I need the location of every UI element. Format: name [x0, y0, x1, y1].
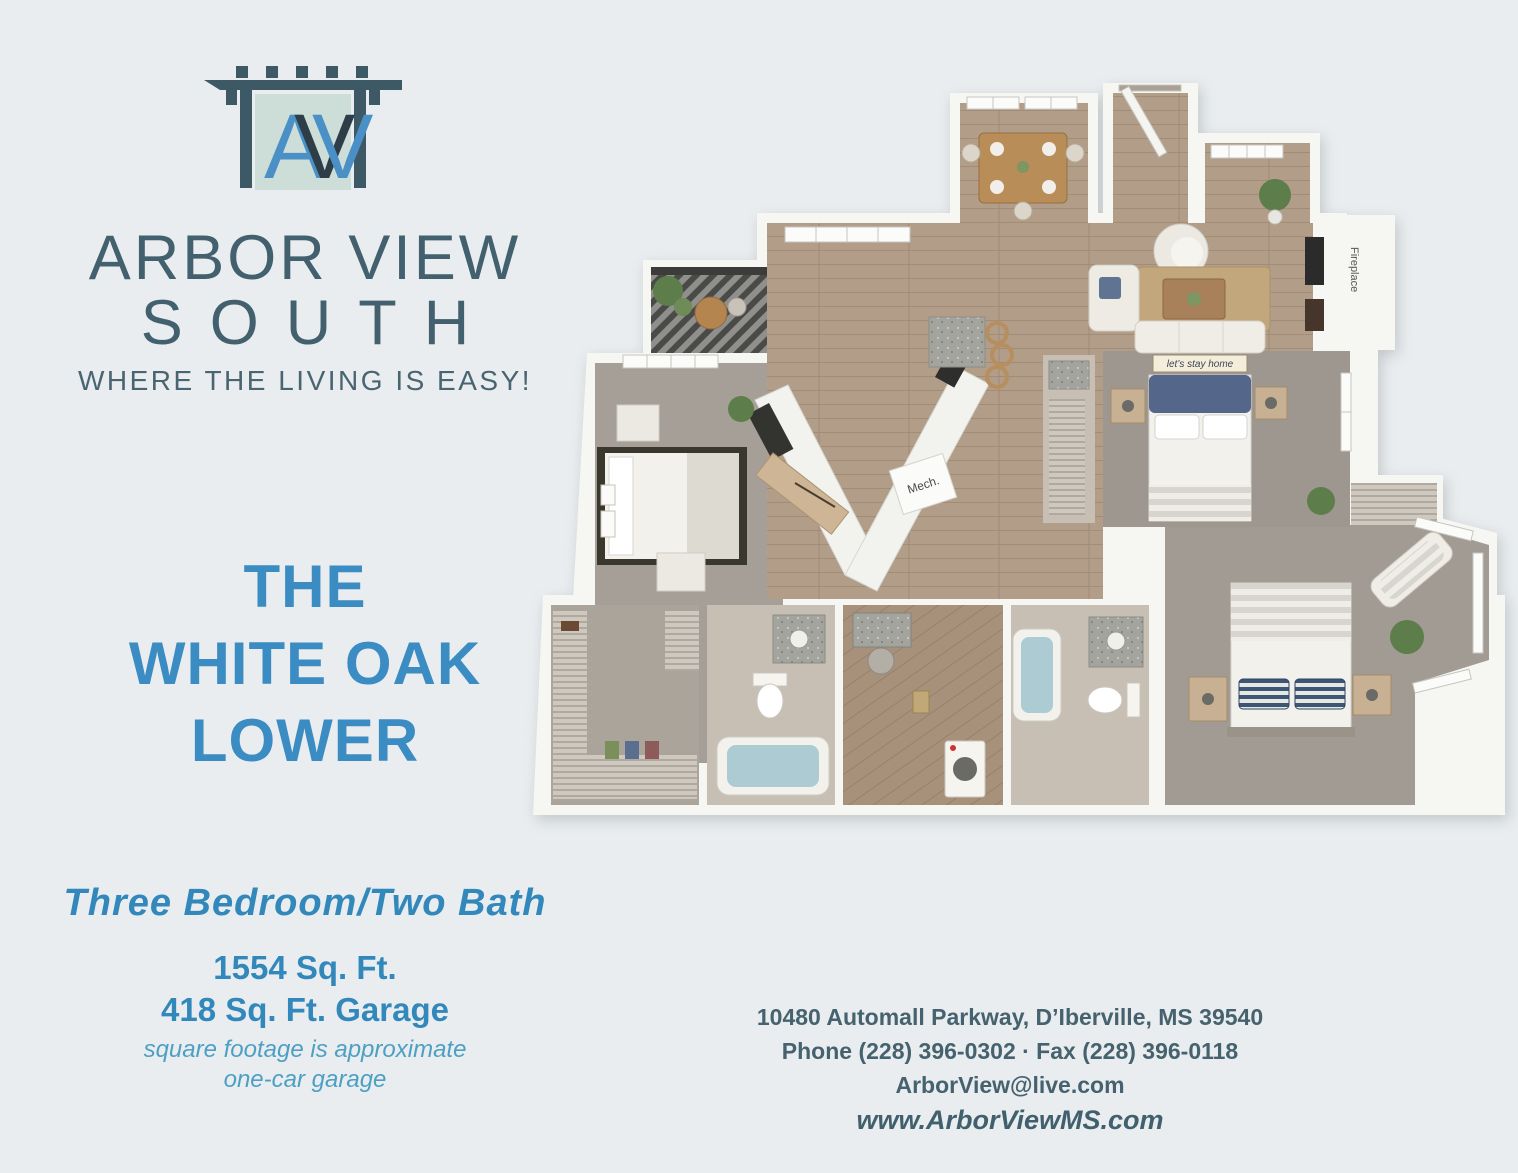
flyer-page: A V V ARBOR VIEW SOUTH WHERE THE LIVING …: [0, 0, 1518, 1173]
living-window: [785, 227, 910, 242]
lamp2-icon: [1265, 397, 1277, 409]
garage-note: one-car garage: [5, 1065, 605, 1095]
garage-footage: 418 Sq. Ft. Garage: [5, 989, 605, 1031]
tub2-icon: [1013, 629, 1061, 721]
nightstand1-icon: [617, 405, 659, 441]
contact-address: 10480 Automall Parkway, D’Iberville, MS …: [700, 1000, 1320, 1034]
closet-shelf-left: [553, 611, 587, 799]
monogram-v-blue: V: [312, 96, 373, 198]
clothes3: [645, 741, 659, 759]
vanity2-icon: [1089, 617, 1143, 667]
ensuite-vanity-icon: [1049, 361, 1089, 389]
bedroom3-plant-icon: [1390, 620, 1424, 654]
contact-phone-fax: Phone (228) 396-0302 · Fax (228) 396-011…: [700, 1034, 1320, 1068]
footage-note: square footage is approximate: [5, 1035, 605, 1065]
contact-email: ArborView@live.com: [700, 1068, 1320, 1102]
bed3-icon: [1227, 583, 1355, 737]
closet-box: [561, 621, 579, 631]
tv-icon: [1305, 237, 1324, 285]
plant-pot-icon: [1268, 210, 1282, 224]
patio-table-icon: [695, 297, 727, 329]
pergola-logo-icon: A V V: [198, 60, 413, 202]
nook-window: [1211, 145, 1283, 158]
pergola-post-left: [240, 90, 252, 188]
floor-plan-rendering: Fireplace: [505, 55, 1505, 820]
firewood-icon: [1305, 299, 1324, 331]
clothes2: [625, 741, 639, 759]
washer-icon: [945, 741, 985, 797]
pergola-rafters: [236, 66, 368, 78]
pergola-beam: [204, 80, 402, 90]
closet-shelf-right: [665, 611, 699, 671]
balcony-plant2-icon: [674, 298, 692, 316]
bed2-icon: [1149, 375, 1251, 521]
contact-website[interactable]: www.ArborViewMS.com: [700, 1102, 1320, 1138]
wall-art2-icon: [601, 511, 615, 537]
fireplace-label: Fireplace: [1348, 247, 1360, 292]
bedroom2-plant-icon: [1307, 487, 1335, 515]
bedroom1-plant-icon: [728, 396, 754, 422]
entry-floor: [1113, 93, 1188, 225]
specs-block: Three Bedroom/Two Bath 1554 Sq. Ft. 418 …: [5, 882, 605, 1095]
wall-art-icon: [601, 485, 615, 505]
bed-bath-heading: Three Bedroom/Two Bath: [5, 882, 605, 925]
living-plant-icon: [1259, 179, 1291, 211]
square-footage: 1554 Sq. Ft.: [5, 947, 605, 989]
balcony-railing: [651, 267, 773, 275]
lamp3-icon: [1202, 693, 1214, 705]
loveseat-icon: [1089, 265, 1139, 331]
vanity1-icon: [773, 615, 825, 663]
ensuite-closet-shelving: [1049, 399, 1085, 515]
tub1-icon: [717, 737, 829, 795]
stay-home-label: let’s stay home: [1167, 359, 1234, 370]
stay-home-sign: let’s stay home: [1153, 355, 1247, 372]
bedroom2-window: [1341, 373, 1351, 451]
bedroom1-window: [623, 355, 718, 368]
bench1-icon: [657, 553, 705, 591]
closet-shelf-bottom: [587, 755, 697, 799]
contact-block: 10480 Automall Parkway, D’Iberville, MS …: [700, 1000, 1320, 1138]
coffee-table-icon: [1163, 279, 1225, 319]
sofa-icon: [1135, 321, 1265, 353]
lamp4-icon: [1366, 689, 1378, 701]
lamp-icon: [1122, 400, 1134, 412]
clothes1: [605, 741, 619, 759]
bed1-icon: [597, 447, 747, 565]
hall-art-icon: [913, 691, 929, 713]
patio-chair-icon: [728, 298, 746, 316]
